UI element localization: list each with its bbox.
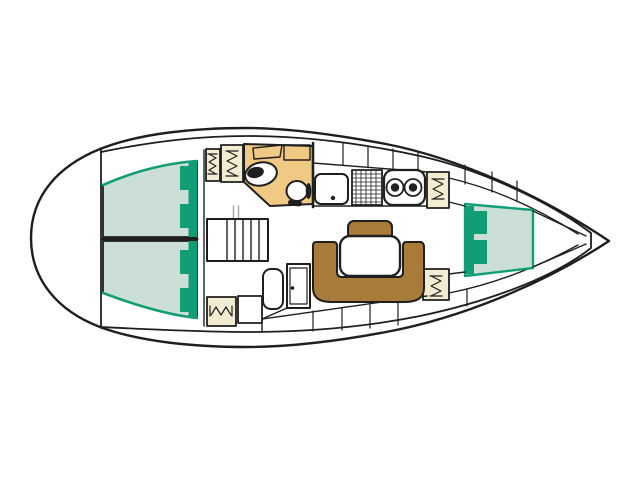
v-berth-accent-bar xyxy=(466,206,474,274)
aft-berth-top-accent-tab2 xyxy=(180,204,189,228)
galley-sink xyxy=(315,174,348,204)
stove-frame xyxy=(352,170,382,205)
locker-bow-top xyxy=(427,172,449,208)
aft-berth-bottom-accent-tab2 xyxy=(180,288,189,312)
washbasin-faucet xyxy=(306,183,312,199)
aft-berth-top-accent-bar xyxy=(189,162,198,237)
chart-table-knob xyxy=(291,286,295,290)
chart-table xyxy=(287,264,310,308)
washbasin-bowl xyxy=(287,181,308,201)
galley-sink-drain xyxy=(331,196,335,200)
boat-floorplan-svg xyxy=(0,0,640,480)
aft-berth-bottom-accent-bar xyxy=(189,241,198,317)
sink-drain-right xyxy=(409,183,417,191)
nav-seat xyxy=(263,269,283,309)
aft-berth-top-accent-tab1 xyxy=(180,166,189,190)
saloon-table xyxy=(340,236,400,276)
screenshot-root xyxy=(0,0,640,480)
double-sink xyxy=(384,170,425,205)
v-berth-accent-tab1 xyxy=(474,211,487,234)
v-berth-accent-tab2 xyxy=(474,240,487,264)
stove xyxy=(352,170,382,205)
sink-drain-left xyxy=(391,183,399,191)
aft-berth-bottom-accent-tab1 xyxy=(180,250,189,274)
nav-cabinet xyxy=(238,296,262,323)
